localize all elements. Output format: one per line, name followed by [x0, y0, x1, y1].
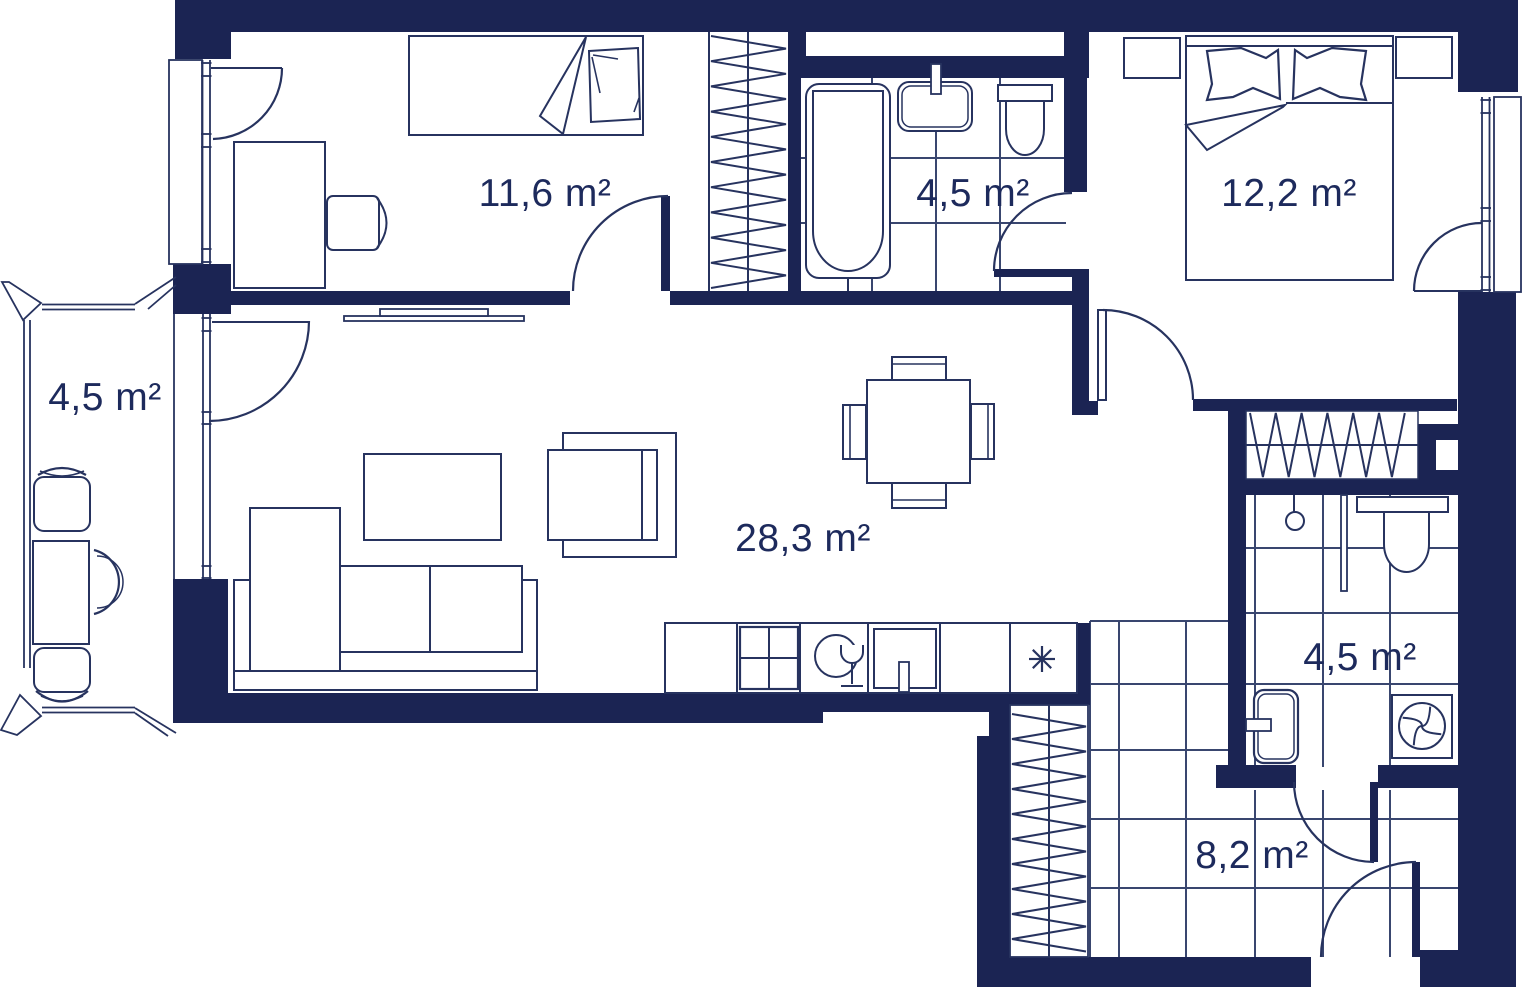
svg-text:4,5 m²: 4,5 m² — [1303, 636, 1417, 679]
svg-text:28,3 m²: 28,3 m² — [735, 517, 871, 560]
svg-text:4,5 m²: 4,5 m² — [48, 376, 162, 419]
svg-text:12,2 m²: 12,2 m² — [1221, 172, 1357, 215]
svg-text:11,6 m²: 11,6 m² — [479, 172, 612, 215]
svg-text:8,2 m²: 8,2 m² — [1195, 834, 1309, 877]
svg-text:4,5 m²: 4,5 m² — [916, 172, 1030, 215]
